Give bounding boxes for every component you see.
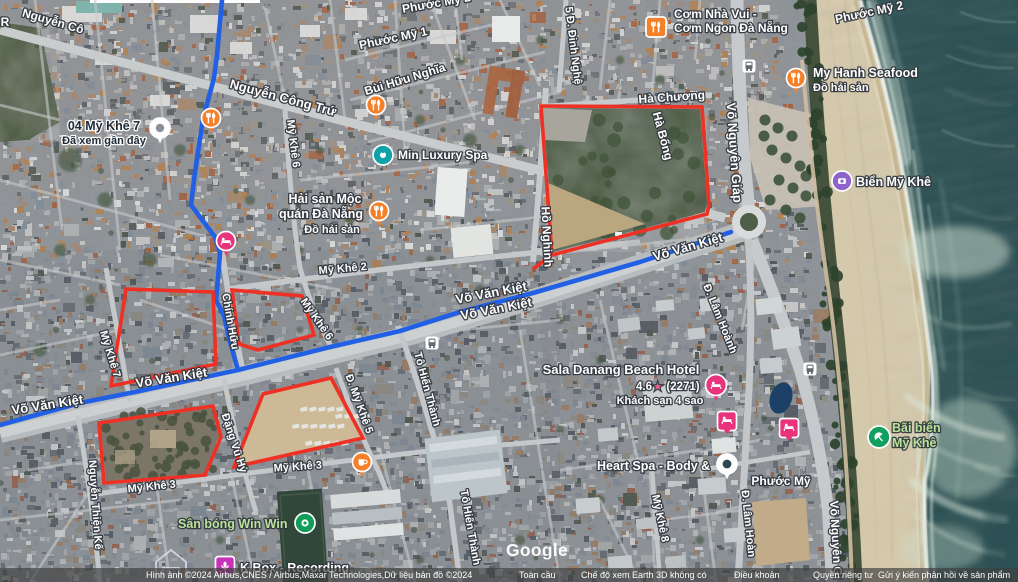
svg-text:04 Mỹ Khê 7: 04 Mỹ Khê 7 <box>68 119 140 133</box>
svg-text:(2271): (2271) <box>666 381 699 393</box>
svg-text:Đồ hải sản: Đồ hải sản <box>304 224 360 236</box>
svg-text:Hình ảnh ©2024 Airbus,CNES / A: Hình ảnh ©2024 Airbus,CNES / Airbus,Maxa… <box>146 570 472 580</box>
svg-text:Toàn cầu: Toàn cầu <box>519 570 556 580</box>
svg-text:Quyền riêng tư: Quyền riêng tư <box>813 570 873 580</box>
svg-text:Cơm Ngon Đà Nẵng: Cơm Ngon Đà Nẵng <box>674 20 788 35</box>
svg-text:Đồ hải sản: Đồ hải sản <box>813 82 869 94</box>
svg-text:Google: Google <box>506 540 568 560</box>
svg-text:Đã xem gần đây: Đã xem gần đây <box>62 135 147 147</box>
svg-text:Cơm Nhà Vui -: Cơm Nhà Vui - <box>674 7 757 21</box>
svg-text:4.6: 4.6 <box>636 381 652 393</box>
svg-text:Sân bóng Win Win: Sân bóng Win Win <box>178 517 287 531</box>
svg-text:Khách sạn 4 sao: Khách sạn 4 sao <box>617 395 704 407</box>
svg-text:R: R <box>1 15 10 29</box>
svg-text:Heart Spa - Body &: Heart Spa - Body & <box>597 459 710 473</box>
svg-text:Biển Mỹ Khê: Biển Mỹ Khê <box>856 175 931 189</box>
svg-text:Mỹ Khê: Mỹ Khê <box>892 436 937 450</box>
svg-text:Bãi biển: Bãi biển <box>892 421 941 435</box>
svg-text:Phước Mỹ: Phước Mỹ <box>751 474 811 488</box>
svg-text:Hải sản Mộc: Hải sản Mộc <box>289 192 362 206</box>
svg-text:Gửi ý kiến phản hồi về sản phẩ: Gửi ý kiến phản hồi về sản phẩm <box>878 570 1010 580</box>
svg-text:My Hanh Seafood: My Hanh Seafood <box>813 66 918 80</box>
svg-text:quán Đà Nẵng: quán Đà Nẵng <box>279 206 363 221</box>
svg-text:Sala Danang Beach Hotel: Sala Danang Beach Hotel <box>543 362 700 377</box>
svg-text:Điều khoản: Điều khoản <box>734 570 780 580</box>
svg-text:Min Luxury Spa: Min Luxury Spa <box>398 148 488 162</box>
svg-text:Chế độ xem Earth 3D không có: Chế độ xem Earth 3D không có <box>581 570 707 580</box>
svg-text:★: ★ <box>653 381 663 393</box>
